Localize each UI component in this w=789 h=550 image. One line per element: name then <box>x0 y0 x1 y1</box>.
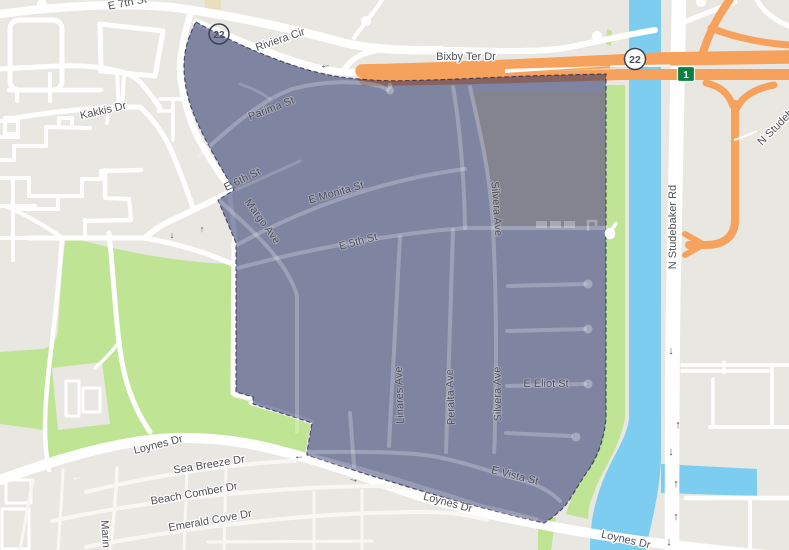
svg-text:1: 1 <box>683 70 689 81</box>
svg-text:22: 22 <box>629 54 641 66</box>
svg-text:←: ← <box>319 58 332 71</box>
svg-text:E Eliot St: E Eliot St <box>523 378 568 390</box>
svg-text:Peralta Ave: Peralta Ave <box>444 369 458 425</box>
svg-text:↓: ↓ <box>668 446 674 458</box>
svg-text:→: → <box>182 16 195 30</box>
svg-text:N Studebaker Rd: N Studebaker Rd <box>667 185 679 269</box>
svg-text:Linares Ave: Linares Ave <box>393 366 407 424</box>
svg-text:Bixby Ter Dr: Bixby Ter Dr <box>436 51 496 63</box>
svg-text:↑: ↑ <box>675 419 681 431</box>
svg-text:22: 22 <box>213 30 225 41</box>
svg-text:←: ← <box>293 450 305 463</box>
svg-text:Silvera Ave: Silvera Ave <box>491 367 504 422</box>
svg-text:↓: ↓ <box>170 230 175 240</box>
svg-text:←: ← <box>71 470 84 484</box>
svg-text:↑: ↑ <box>673 511 679 523</box>
svg-text:↓: ↓ <box>666 536 672 548</box>
svg-text:Marin: Marin <box>98 520 112 548</box>
svg-text:↓: ↓ <box>668 345 674 357</box>
svg-text:↑: ↑ <box>200 224 205 234</box>
svg-text:↑: ↑ <box>673 478 679 490</box>
